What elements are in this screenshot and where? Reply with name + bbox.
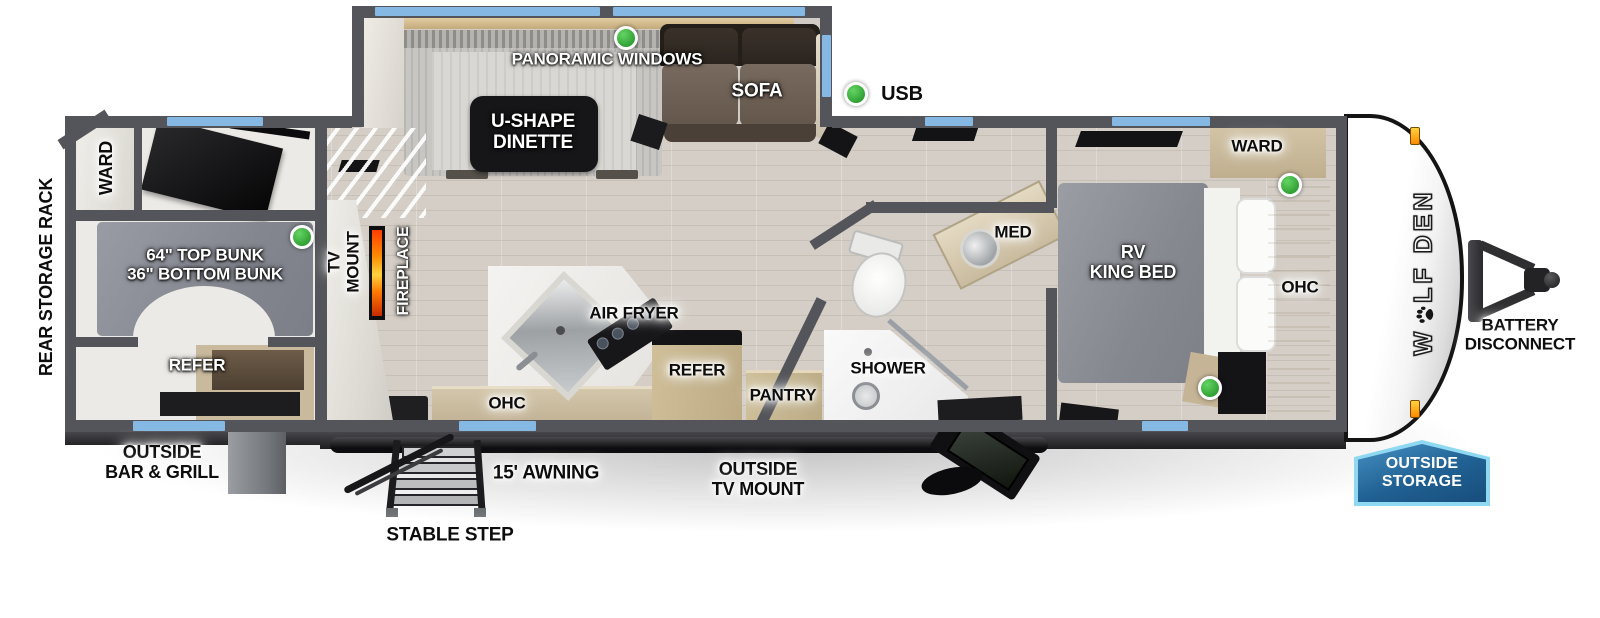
bedroom-ohc-column <box>1268 178 1330 426</box>
window-slideout-side <box>822 35 831 97</box>
left-wall <box>65 116 76 432</box>
nightstand-black <box>1218 352 1266 414</box>
window-bunk-top <box>167 117 263 126</box>
slideout-left-wall <box>352 6 364 127</box>
label-u-shape-dinette: U-SHAPE DINETTE <box>491 112 575 154</box>
bedroom-wall-upper <box>1046 127 1057 208</box>
entry-door-main <box>459 421 536 431</box>
label-fireplace: FIREPLACE <box>395 227 413 316</box>
sofa-seat-left <box>662 64 738 126</box>
label-air-fryer: AIR FRYER <box>589 305 678 324</box>
label-ohc-kitchen: OHC <box>488 395 525 414</box>
label-med: MED <box>994 224 1031 243</box>
bedroom-wall-lower <box>1046 288 1057 421</box>
label-sofa: SOFA <box>732 82 783 103</box>
bunk-floor-mat <box>160 392 300 416</box>
clearance-light-bottom <box>1410 400 1420 418</box>
label-awning: 15' AWNING <box>493 464 599 485</box>
outside-tv-bracket <box>915 420 1065 505</box>
window-slideout-right <box>613 7 805 16</box>
label-pantry: PANTRY <box>750 387 817 406</box>
brand-logo-wolf-den: W LF DEN <box>1410 189 1439 356</box>
front-cap <box>1344 114 1464 442</box>
label-rear-storage-rack: REAR STORAGE RACK <box>37 178 57 376</box>
label-tv-mount: TV MOUNT <box>325 231 362 292</box>
bunk-divider-lower-right <box>268 337 315 347</box>
sofa-skirt <box>664 124 816 142</box>
sink-drain <box>556 326 565 335</box>
top-wall-front <box>832 116 1347 128</box>
bath-wall-top <box>866 202 1054 213</box>
usb-indicator-dot <box>1198 376 1222 400</box>
brand-part2: LF DEN <box>1410 189 1439 303</box>
entry-door-bedroom <box>1142 421 1188 431</box>
label-outside-storage: OUTSIDE STORAGE <box>1382 455 1462 490</box>
label-shower: SHOWER <box>850 360 925 379</box>
window-bedroom-top <box>1112 117 1210 126</box>
usb-indicator-dot <box>1278 173 1302 197</box>
sofa-back-cushion-right <box>742 28 816 68</box>
label-ohc-bedroom: OHC <box>1281 279 1318 298</box>
dinette-foot-right <box>596 170 638 179</box>
hall-ohc-shelf-black <box>912 128 978 141</box>
label-outside-bar-grill: OUTSIDE BAR & GRILL <box>105 443 219 483</box>
slideout-left-wall-panel <box>362 16 404 128</box>
label-ward-bunk: WARD <box>97 141 117 195</box>
label-bunks: 64" TOP BUNK 36" BOTTOM BUNK <box>127 246 283 283</box>
label-stable-step: STABLE STEP <box>386 526 513 547</box>
label-refer-bunk: REFER <box>169 357 226 376</box>
shower-head <box>852 382 880 410</box>
paw-print-icon <box>1415 306 1434 325</box>
label-refer-kitchen: REFER <box>669 362 726 381</box>
window-slideout-left <box>375 7 600 16</box>
window-kitchen-top <box>925 117 973 126</box>
window-bunk-bottom <box>133 421 225 431</box>
fireplace-flame <box>372 230 382 316</box>
bedroom-ohc-shelf-black <box>1075 131 1183 147</box>
label-panoramic-windows: PANORAMIC WINDOWS <box>512 51 703 70</box>
usb-indicator-dot <box>844 82 868 106</box>
bunk-divider-lower-left <box>76 337 138 347</box>
bunk-divider-upper <box>76 210 315 221</box>
label-outside-tv-mount: OUTSIDE TV MOUNT <box>712 460 804 500</box>
usb-indicator-dot <box>290 225 314 249</box>
clearance-light-top <box>1410 127 1420 145</box>
rv-floorplan-diagram: W LF DEN <box>0 0 1600 618</box>
usb-indicator-dot <box>614 26 638 50</box>
brand-part1: W <box>1410 328 1439 356</box>
bunk-ward-divider <box>134 127 142 217</box>
label-usb: USB <box>881 83 923 105</box>
king-bed-mattress <box>1058 183 1208 383</box>
bunk-refer-counter <box>212 350 304 390</box>
outside-storage-badge-face: OUTSIDE STORAGE <box>1358 444 1486 502</box>
hitch-coupler-knob <box>1544 272 1560 288</box>
label-rv-king-bed: RV KING BED <box>1090 243 1176 283</box>
label-battery-disconnect: BATTERY DISCONNECT <box>1465 316 1575 353</box>
shower-drain <box>864 348 872 356</box>
label-ward-bedroom: WARD <box>1231 138 1282 157</box>
front-wall <box>1336 116 1347 432</box>
stabilizer-leg <box>228 432 286 494</box>
